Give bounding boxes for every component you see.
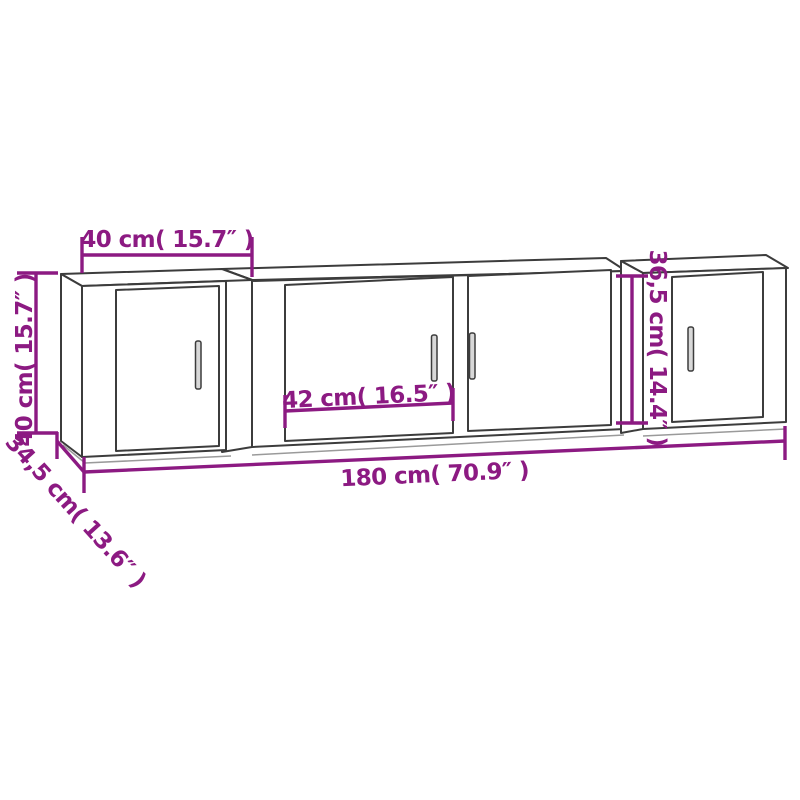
product-dimension-diagram: 40 cm( 15.7″ ) 40 cm( 15.7″ ) 42 cm( 16.… xyxy=(0,0,800,800)
left-cabinet-side-face xyxy=(61,274,82,457)
middle-cabinet-left-door xyxy=(285,277,453,441)
dim-middle-height-label: 36,5 cm( 14.4″ ) xyxy=(644,250,670,447)
dim-left-height-label: 40 cm( 15.7″ ) xyxy=(12,273,38,446)
middle-right-door-handle xyxy=(470,333,476,379)
middle-cabinet xyxy=(222,258,626,455)
left-cabinet-door-handle xyxy=(196,341,202,389)
left-cabinet xyxy=(61,269,252,463)
middle-cabinet-right-door xyxy=(468,270,611,431)
dim-top-width-label: 40 cm( 15.7″ ) xyxy=(80,227,253,253)
right-cabinet-door xyxy=(672,272,763,422)
left-cabinet-door xyxy=(116,286,219,451)
diagram-canvas: 40 cm( 15.7″ ) 40 cm( 15.7″ ) 42 cm( 16.… xyxy=(0,0,800,800)
middle-left-door-handle xyxy=(432,335,438,381)
right-cabinet-door-handle xyxy=(688,327,694,371)
